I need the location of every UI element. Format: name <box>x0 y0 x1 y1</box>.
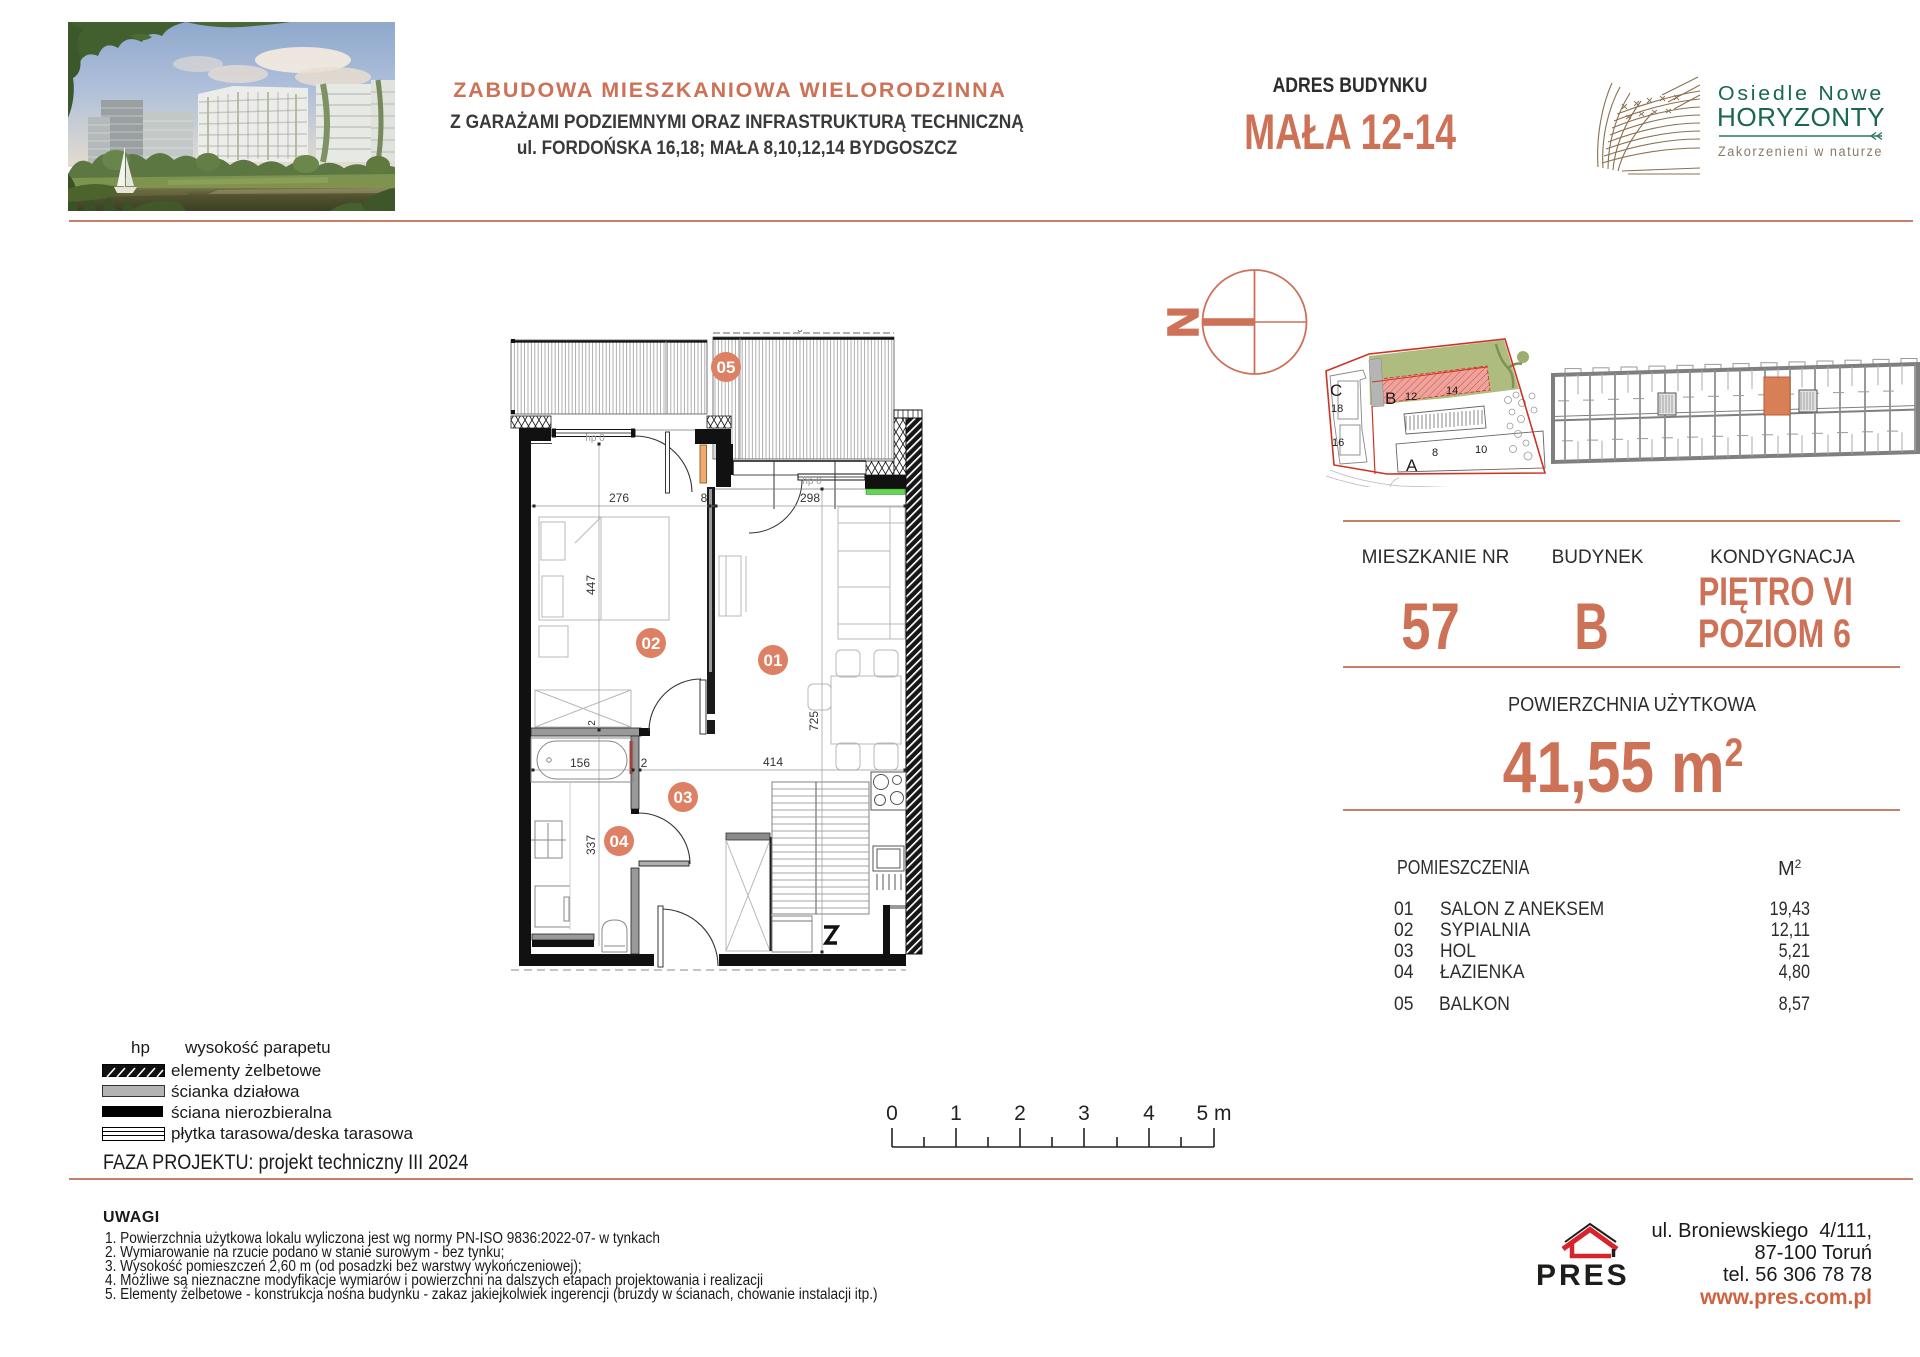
svg-text:337: 337 <box>584 835 598 855</box>
svg-text:03: 03 <box>674 788 693 807</box>
svg-text:5 m: 5 m <box>1196 1102 1231 1125</box>
svg-text:4: 4 <box>1143 1102 1155 1125</box>
svg-text:276: 276 <box>609 491 629 505</box>
svg-text:3: 3 <box>1078 1102 1090 1125</box>
svg-text:C: C <box>1330 381 1342 400</box>
svg-text:447: 447 <box>584 575 598 595</box>
svg-text:02: 02 <box>642 634 661 653</box>
svg-text:hp 0: hp 0 <box>585 433 605 444</box>
svg-text:2: 2 <box>641 756 648 770</box>
svg-text:14: 14 <box>1446 385 1458 397</box>
svg-text:HORYZONTY: HORYZONTY <box>1717 102 1885 132</box>
svg-text:18: 18 <box>1331 403 1343 415</box>
svg-text:1: 1 <box>950 1102 962 1125</box>
svg-text:8: 8 <box>1432 447 1438 459</box>
svg-text:05: 05 <box>717 358 736 377</box>
svg-text:N: N <box>1159 306 1208 338</box>
svg-text:12: 12 <box>1405 391 1417 403</box>
svg-text:298: 298 <box>800 491 820 505</box>
svg-text:8: 8 <box>701 491 708 505</box>
svg-text:01: 01 <box>764 651 783 670</box>
svg-text:04: 04 <box>610 832 629 851</box>
svg-text:8: 8 <box>797 330 802 334</box>
svg-text:B: B <box>1385 389 1396 408</box>
svg-text:0: 0 <box>886 1102 898 1125</box>
svg-text:Zakorzenieni w naturze: Zakorzenieni w naturze <box>1718 144 1883 159</box>
svg-text:414: 414 <box>763 755 783 769</box>
svg-text:725: 725 <box>807 711 821 731</box>
svg-text:2: 2 <box>587 720 598 726</box>
svg-text:2: 2 <box>1014 1102 1026 1125</box>
svg-text:A: A <box>1406 456 1418 475</box>
svg-text:hp 0: hp 0 <box>802 476 822 487</box>
svg-text:156: 156 <box>570 756 590 770</box>
svg-text:10: 10 <box>1475 444 1487 456</box>
svg-text:16: 16 <box>1332 437 1344 449</box>
